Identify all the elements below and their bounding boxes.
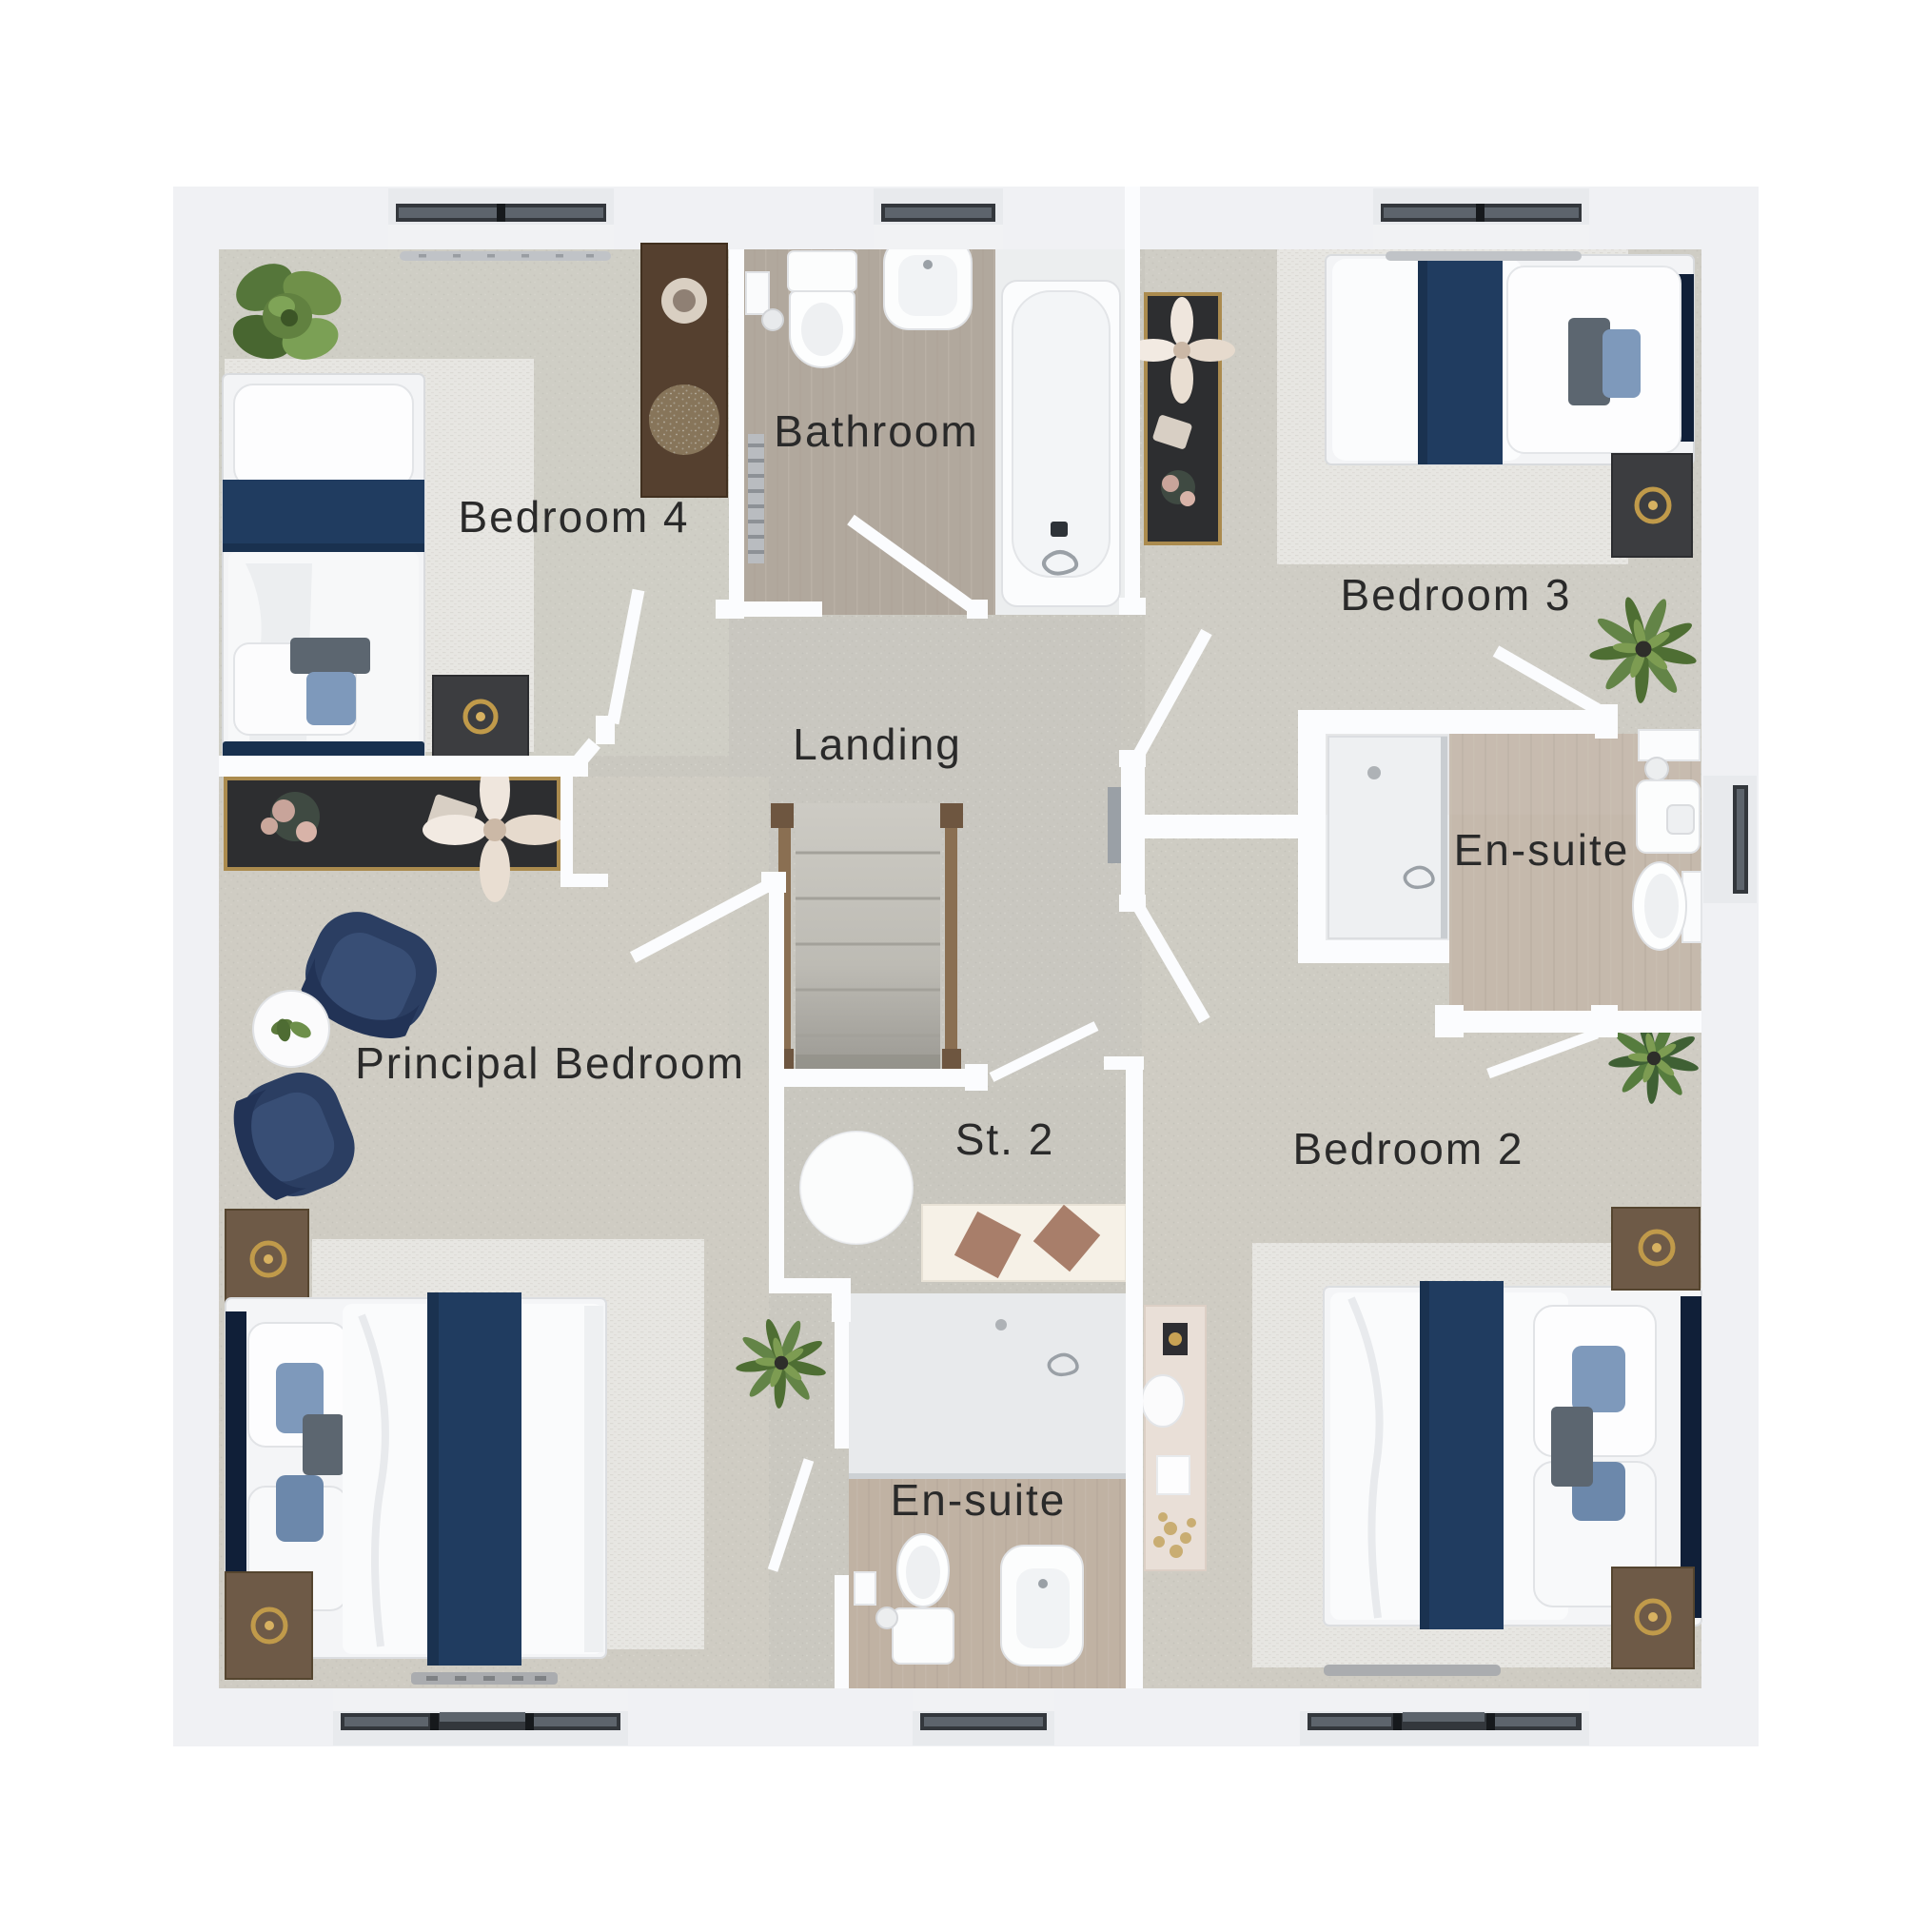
svg-text:Landing: Landing	[793, 720, 962, 769]
svg-text:Principal Bedroom: Principal Bedroom	[355, 1038, 745, 1088]
svg-text:En-suite: En-suite	[891, 1475, 1067, 1525]
svg-text:Bedroom 4: Bedroom 4	[458, 492, 689, 542]
svg-text:En-suite: En-suite	[1454, 825, 1630, 875]
svg-text:Bedroom 3: Bedroom 3	[1340, 570, 1571, 620]
svg-text:Bathroom: Bathroom	[774, 406, 978, 456]
svg-text:St. 2: St. 2	[955, 1114, 1055, 1164]
svg-text:Bedroom 2: Bedroom 2	[1292, 1124, 1524, 1173]
